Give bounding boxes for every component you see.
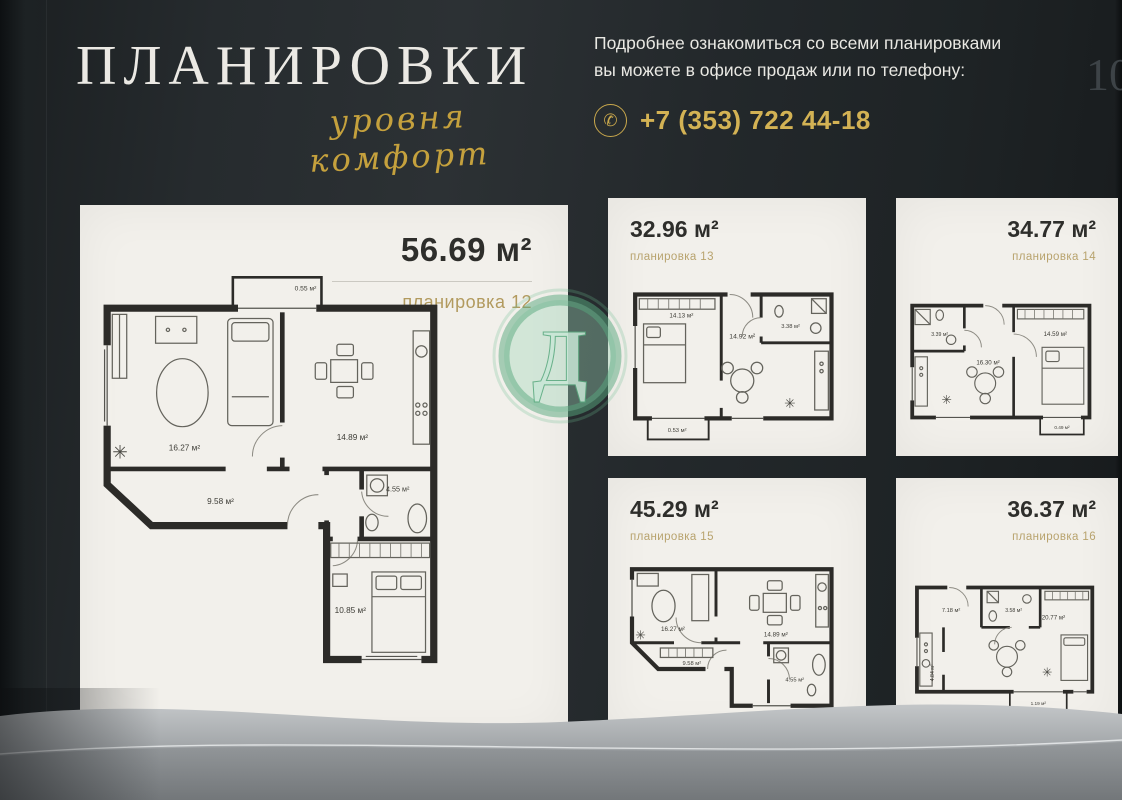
info-line-2: вы можете в офисе продаж или по телефону… xyxy=(594,57,1001,84)
floorplan-drawing-12: 0.55 м² xyxy=(102,273,442,670)
page-number: 10 xyxy=(1086,48,1122,101)
outer-walls xyxy=(635,295,831,419)
living-room: ✳ 20.77 м² xyxy=(989,591,1089,680)
svg-text:✳: ✳ xyxy=(942,393,952,407)
svg-text:16.27 м²: 16.27 м² xyxy=(661,626,685,633)
svg-text:14.89 м²: 14.89 м² xyxy=(764,631,788,638)
svg-text:0.53 м²: 0.53 м² xyxy=(668,428,687,434)
card-14-header: 34.77 м² планировка 14 xyxy=(918,216,1096,263)
card-14-plan-name: планировка 14 xyxy=(918,251,1096,263)
door-openings xyxy=(226,423,389,566)
page-spine-shadow xyxy=(0,0,46,800)
kitchen: 14.89 м² xyxy=(750,575,829,639)
interior-walls xyxy=(941,585,1040,692)
svg-text:3.38 м²: 3.38 м² xyxy=(781,324,800,330)
info-line-1: Подробнее ознакомиться со всеми планиров… xyxy=(594,30,1001,57)
svg-text:0.55 м²: 0.55 м² xyxy=(295,286,317,293)
svg-text:20.77 м²: 20.77 м² xyxy=(1042,615,1065,622)
svg-text:10.85 м²: 10.85 м² xyxy=(335,606,367,615)
svg-text:14.59 м²: 14.59 м² xyxy=(1044,331,1067,338)
living-kitchen: ✳ 16.30 м² xyxy=(915,357,1004,407)
page-title: ПЛАНИРОВКИ xyxy=(76,34,533,98)
svg-text:3.58 м²: 3.58 м² xyxy=(1005,608,1022,614)
card-13-area: 32.96 м² xyxy=(630,216,844,243)
card-13-header: 32.96 м² планировка 13 xyxy=(630,216,844,263)
svg-text:9.58 м²: 9.58 м² xyxy=(682,661,701,667)
living-kitchen: ✳ 14.92 м² xyxy=(722,334,829,412)
page-spine-line xyxy=(46,0,47,800)
card-16-plan-name: планировка 16 xyxy=(918,531,1096,543)
bedroom: 14.13 м² xyxy=(639,299,715,383)
windows xyxy=(910,367,970,420)
card-13-plan-name: планировка 13 xyxy=(630,251,844,263)
living-room: ✳ 16.27 м² xyxy=(112,314,273,463)
table-surface xyxy=(0,688,1122,800)
floorplan-card-12: 56.69 м² планировка 12 0.55 м² xyxy=(80,205,568,735)
hallway: 7.18 м² xyxy=(942,608,961,614)
floorplan-card-14: 34.77 м² планировка 14 0.49 м² xyxy=(896,198,1118,456)
watermark-letter: Д xyxy=(532,315,587,403)
svg-text:14.89 м²: 14.89 м² xyxy=(337,433,369,442)
watermark-logo: Д xyxy=(490,286,630,426)
svg-text:4.84 м²: 4.84 м² xyxy=(930,664,936,681)
bathroom: 3.39 м² xyxy=(915,309,956,344)
outer-walls xyxy=(632,569,832,706)
svg-text:16.27 м²: 16.27 м² xyxy=(169,443,201,452)
svg-text:14.92 м²: 14.92 м² xyxy=(729,334,756,341)
card-16-header: 36.37 м² планировка 16 xyxy=(918,496,1096,543)
svg-text:4.55 м²: 4.55 м² xyxy=(386,485,410,494)
bedroom: 14.59 м² xyxy=(1017,309,1083,404)
phone-row: ✆ +7 (353) 722 44-18 xyxy=(594,104,871,137)
floorplan-drawing-14: 0.49 м² xyxy=(898,277,1116,448)
bathroom: 3.38 м² xyxy=(775,299,826,334)
card-15-plan-name: планировка 15 xyxy=(630,531,844,543)
info-text: Подробнее ознакомиться со всеми планиров… xyxy=(594,30,1001,84)
watermark-circle-icon: Д xyxy=(490,286,630,426)
svg-text:✳: ✳ xyxy=(635,628,646,643)
svg-text:0.49 м²: 0.49 м² xyxy=(1054,425,1070,431)
brochure-page: ПЛАНИРОВКИ уровня комфорт Подробнее озна… xyxy=(0,0,1122,800)
outer-walls xyxy=(107,308,434,659)
bathroom: 4.55 м² xyxy=(366,475,427,533)
hallway: 9.58 м² xyxy=(207,497,234,506)
svg-text:3.39 м²: 3.39 м² xyxy=(931,332,948,338)
phone-icon: ✆ xyxy=(594,104,627,137)
card-16-area: 36.37 м² xyxy=(918,496,1096,523)
svg-text:4.55 м²: 4.55 м² xyxy=(785,678,804,684)
kitchen: 14.89 м² xyxy=(315,331,429,444)
svg-text:16.30 м²: 16.30 м² xyxy=(976,359,999,366)
balcony: 0.53 м² xyxy=(648,416,709,440)
card-14-area: 34.77 м² xyxy=(918,216,1096,243)
card-15-area: 45.29 м² xyxy=(630,496,844,523)
svg-text:9.58 м²: 9.58 м² xyxy=(207,497,234,506)
bedroom: 10.85 м² xyxy=(331,543,430,652)
hallway: 9.58 м² xyxy=(660,648,713,667)
balcony: 0.55 м² xyxy=(233,277,322,306)
phone-number: +7 (353) 722 44-18 xyxy=(640,105,871,136)
svg-text:✳: ✳ xyxy=(112,443,128,464)
floorplan-drawing-13: 0.53 м² xyxy=(616,263,858,452)
windows xyxy=(103,304,421,664)
bathroom: 3.58 м² xyxy=(987,591,1031,621)
floorplan-card-13: 32.96 м² планировка 13 0.53 м² xyxy=(608,198,866,456)
balcony: 0.49 м² xyxy=(1040,415,1084,434)
outer-walls xyxy=(912,306,1089,418)
page-subtitle: уровня комфорт xyxy=(232,93,565,183)
card-15-header: 45.29 м² планировка 15 xyxy=(630,496,844,543)
svg-text:✳: ✳ xyxy=(1042,666,1052,680)
svg-text:14.13 м²: 14.13 м² xyxy=(669,313,693,320)
svg-text:✳: ✳ xyxy=(784,396,795,412)
interior-walls xyxy=(912,303,1036,417)
table-surface-shadow xyxy=(0,688,160,800)
svg-text:7.18 м²: 7.18 м² xyxy=(942,608,961,614)
card-12-area: 56.69 м² xyxy=(332,231,532,269)
living-room: ✳ 16.27 м² xyxy=(635,573,709,642)
kitchen: 4.84 м² xyxy=(920,633,936,686)
